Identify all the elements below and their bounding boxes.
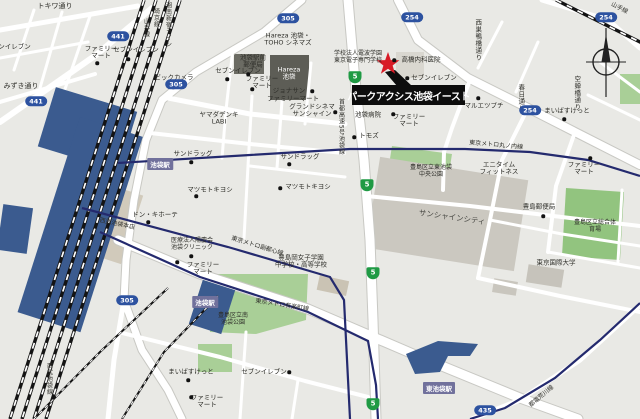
station-label-ikebukuro-1: 池袋駅 [147, 158, 173, 170]
poi-seven-eleven-1-dot [126, 57, 130, 61]
expressway-5-badge-4: 5 [367, 398, 380, 410]
poi-sundrug-2-dot [287, 162, 291, 166]
route-254-badge-2: 254 [519, 105, 541, 115]
poi-family-mart-2-dot [250, 87, 254, 91]
poi-my-basket-1-dot [562, 117, 566, 121]
poi-tomods-dot [352, 135, 356, 139]
poi-jonathan-dot [310, 89, 314, 93]
poi-family-mart-1-dot [95, 61, 99, 65]
poi-seven-eleven-4-dot [287, 370, 291, 374]
station-label-higashi-ikebukuro: 東池袋駅 [423, 382, 455, 394]
route-254-badge-1: 254 [401, 12, 423, 22]
poi-family-mart-5-dot [175, 260, 179, 264]
poi-sundrug-1-dot [189, 160, 193, 164]
poi-seven-eleven-2-dot [225, 77, 229, 81]
route-305-badge-2: 305 [165, 79, 187, 89]
poi-matsumoto-kiyoshi-1-dot [194, 194, 198, 198]
station-label-ikebukuro-2: 池袋駅 [192, 296, 218, 308]
route-441-badge-1: 441 [107, 31, 129, 41]
route-435-badge: 435 [474, 405, 496, 415]
route-305-badge-3: 305 [116, 295, 138, 305]
poi-matsumoto-kiyoshi-2-dot [278, 186, 282, 190]
poi-family-mart-6-dot [588, 156, 592, 160]
area-map-ikebukuro-east: パークアクシス池袋イースト トキワ通りセブンイレブンセブンイレブンファミリー マ… [0, 0, 640, 419]
poi-toshima-post-office-dot [541, 214, 545, 218]
poi-ikebukuro-clinic-dot [189, 254, 193, 258]
poi-grand-cinema-sunshine-dot [333, 110, 337, 114]
poi-don-quijote-dot [146, 220, 150, 224]
toden-arakawa-line-path [470, 303, 640, 419]
route-305-badge-1: 305 [277, 13, 299, 23]
poi-seven-eleven-3-dot [405, 76, 409, 80]
expressway-5-badge-1: 5 [349, 71, 362, 83]
poi-my-basket-2-dot [186, 378, 190, 382]
poi-maruetsu-petit-dot [476, 96, 480, 100]
route-441-badge-2: 441 [25, 96, 47, 106]
poi-takahashi-naika-clinic-dot [392, 58, 396, 62]
route-254-badge-3: 254 [595, 12, 617, 22]
star-marker-icon [377, 52, 400, 74]
poi-family-mart-7-dot [189, 395, 193, 399]
property-marker-label: パークアクシス池袋イースト [352, 85, 465, 105]
poi-family-mart-3-dot [391, 112, 395, 116]
expressway-5-badge-2: 5 [361, 179, 374, 191]
poi-ikebukuro-ekimae-post-office-dot [246, 72, 250, 76]
expressway-5-badge-3: 5 [367, 267, 380, 279]
